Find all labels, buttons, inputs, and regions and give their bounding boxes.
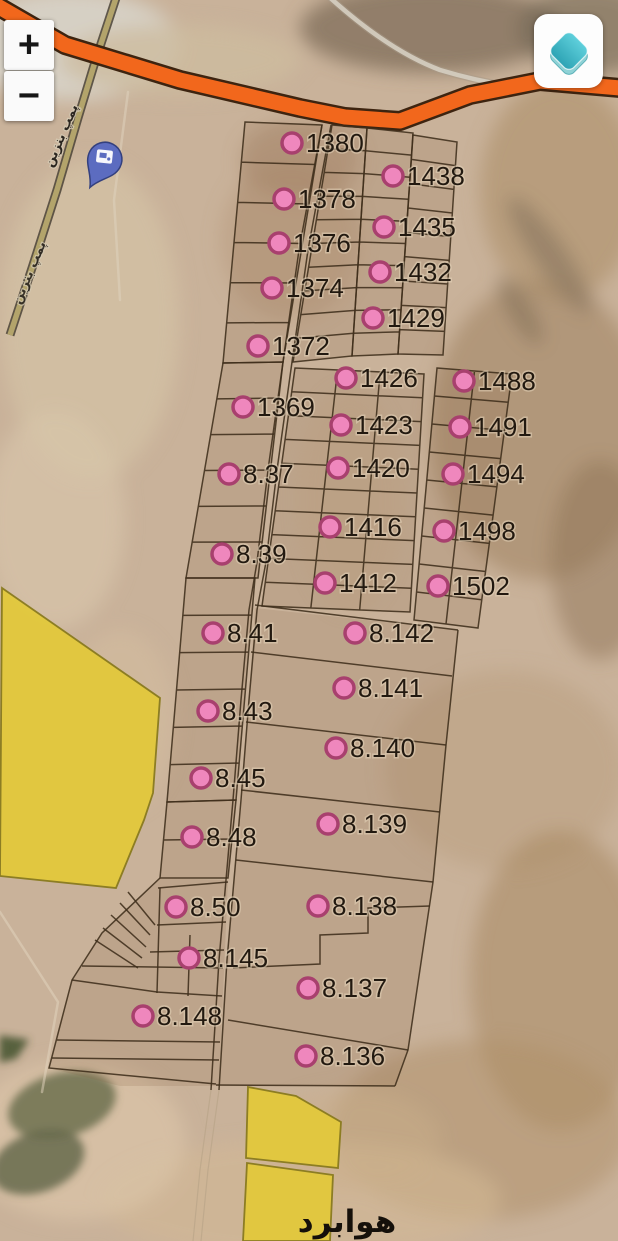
parcel-marker-label: 8.50 — [190, 892, 241, 922]
parcel-marker-label: 8.141 — [358, 673, 423, 703]
fuel-pump-icon — [96, 149, 113, 164]
parcel-marker-label: 8.142 — [369, 618, 434, 648]
parcel-marker[interactable]: 1423 — [331, 410, 413, 440]
parcel-marker[interactable]: 1498 — [434, 516, 516, 546]
parcel-marker[interactable]: 8.48 — [182, 822, 257, 852]
layers-icon — [544, 26, 594, 76]
parcel-marker[interactable]: 1376 — [269, 228, 351, 258]
parcel-marker[interactable]: 8.139 — [318, 809, 407, 839]
parcel-marker[interactable]: 8.141 — [334, 673, 423, 703]
parcel-marker[interactable]: 1420 — [328, 453, 410, 483]
parcel-marker[interactable]: 8.136 — [296, 1041, 385, 1071]
parcel-marker-label: 1429 — [387, 303, 445, 333]
parcel-marker-label: 1488 — [478, 366, 536, 396]
parcel-marker[interactable]: 1438 — [383, 161, 465, 191]
parcel-marker-label: 1380 — [306, 128, 364, 158]
map-canvas[interactable]: پمپ بنزین پمپ بنزین هوابرد 1380143813781… — [0, 0, 618, 1241]
parcel-marker[interactable]: 8.41 — [203, 618, 278, 648]
parcel-marker[interactable]: 1429 — [363, 303, 445, 333]
parcel-marker-label: 1369 — [257, 392, 315, 422]
parcel-marker[interactable]: 1380 — [282, 128, 364, 158]
parcel-marker[interactable]: 1435 — [374, 212, 456, 242]
parcel-marker-label: 1435 — [398, 212, 456, 242]
parcel-marker[interactable]: 1488 — [454, 366, 536, 396]
zoom-in-button[interactable]: + — [4, 20, 54, 70]
parcel-marker-label: 1416 — [344, 512, 402, 542]
parcel-marker[interactable]: 1432 — [370, 257, 452, 287]
parcel-marker[interactable]: 1494 — [443, 459, 525, 489]
parcel-marker-label: 8.145 — [203, 943, 268, 973]
parcel-marker[interactable]: 8.45 — [191, 763, 266, 793]
parcel-marker-label: 8.43 — [222, 696, 273, 726]
parcel-marker[interactable]: 1426 — [336, 363, 418, 393]
parcel-marker-label: 8.148 — [157, 1001, 222, 1031]
parcel-marker[interactable]: 8.39 — [212, 539, 287, 569]
parcel-marker-label: 1423 — [355, 410, 413, 440]
parcel-marker-label: 8.139 — [342, 809, 407, 839]
parcel-marker[interactable]: 1369 — [233, 392, 315, 422]
parcel-marker[interactable]: 1378 — [274, 184, 356, 214]
parcel-marker[interactable]: 8.148 — [133, 1001, 222, 1031]
parcel-marker[interactable]: 8.137 — [298, 973, 387, 1003]
parcel-marker-label: 1491 — [474, 412, 532, 442]
layers-button[interactable] — [534, 14, 603, 88]
parcel-marker-label: 1426 — [360, 363, 418, 393]
parcel-marker[interactable]: 1412 — [315, 568, 397, 598]
parcel-marker-label: 1378 — [298, 184, 356, 214]
parcel-marker-label: 1374 — [286, 273, 344, 303]
parcel-marker[interactable]: 1502 — [428, 571, 510, 601]
parcel-marker-label: 8.39 — [236, 539, 287, 569]
parcel-marker-label: 1412 — [339, 568, 397, 598]
parcel-marker-label: 8.37 — [243, 459, 294, 489]
parcel-marker-label: 1438 — [407, 161, 465, 191]
parcel-marker-label: 1420 — [352, 453, 410, 483]
parcel-marker-label: 1494 — [467, 459, 525, 489]
parcel-marker-label: 8.48 — [206, 822, 257, 852]
parcel-marker-label: 1376 — [293, 228, 351, 258]
parcel-marker[interactable]: 1491 — [450, 412, 532, 442]
parcel-marker-label: 8.138 — [332, 891, 397, 921]
parcel-marker-label: 1498 — [458, 516, 516, 546]
parcel-marker[interactable]: 8.37 — [219, 459, 294, 489]
parcel-marker-label: 1432 — [394, 257, 452, 287]
zoom-out-button[interactable]: − — [4, 71, 54, 121]
parcel-marker[interactable]: 8.50 — [166, 892, 241, 922]
parcel-marker-label: 1372 — [272, 331, 330, 361]
place-name-label: هوابرد — [298, 1204, 396, 1240]
parcel-marker[interactable]: 8.140 — [326, 733, 415, 763]
parcel-marker[interactable]: 1372 — [248, 331, 330, 361]
zoom-controls: + − — [4, 20, 54, 121]
parcel-marker[interactable]: 8.145 — [179, 943, 268, 973]
parcel-marker-label: 8.140 — [350, 733, 415, 763]
parcel-marker-label: 8.45 — [215, 763, 266, 793]
parcel-marker-label: 1502 — [452, 571, 510, 601]
parcel-marker[interactable]: 8.138 — [308, 891, 397, 921]
parcel-marker[interactable]: 8.142 — [345, 618, 434, 648]
parcel-marker-label: 8.136 — [320, 1041, 385, 1071]
parcel-marker-label: 8.41 — [227, 618, 278, 648]
map-view[interactable]: پمپ بنزین پمپ بنزین هوابرد 1380143813781… — [0, 0, 618, 1241]
parcel-marker[interactable]: 1374 — [262, 273, 344, 303]
parcel-marker[interactable]: 1416 — [320, 512, 402, 542]
parcel-marker-label: 8.137 — [322, 973, 387, 1003]
parcel-marker[interactable]: 8.43 — [198, 696, 273, 726]
